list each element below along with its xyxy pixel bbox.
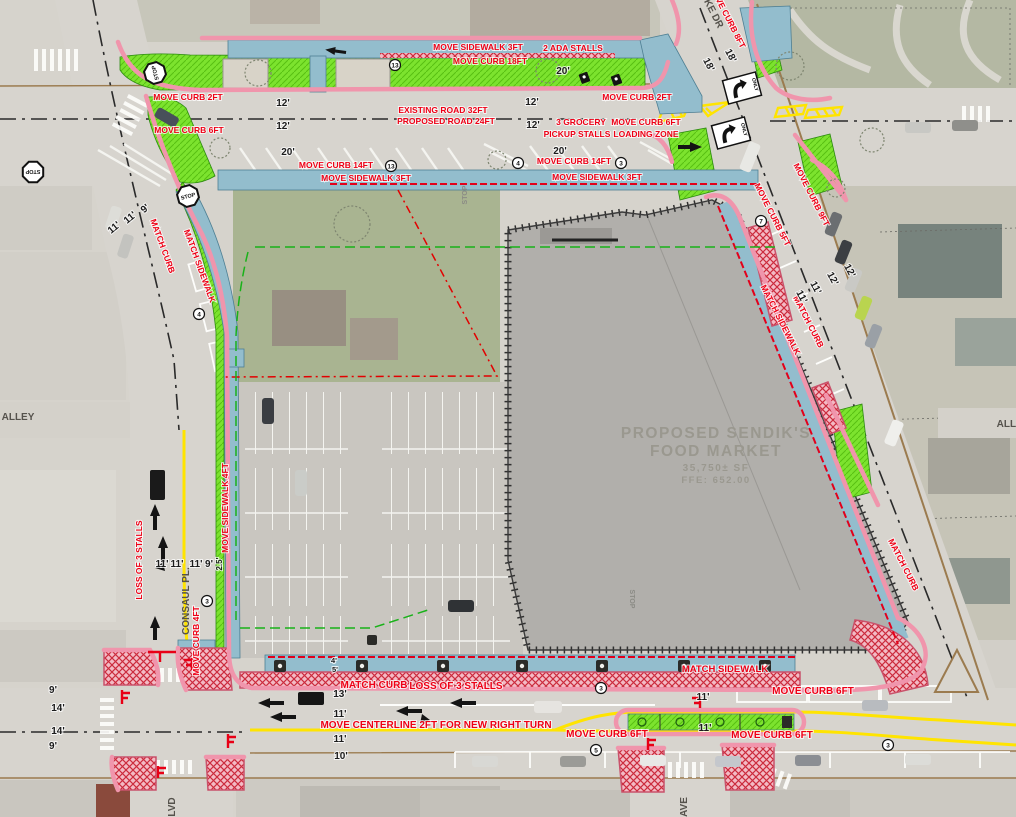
annotation-label: MOVE CURB 14FT: [299, 160, 374, 170]
dimension-label: 4': [331, 656, 337, 665]
site-plan-canvas: 131343743353STOPSTOPSTOPONLYONLY MOVE SI…: [0, 0, 1016, 817]
annotation-label: 3 GROCERY: [556, 117, 606, 127]
dimension-label: 11': [334, 734, 347, 745]
keynote-number: 4: [197, 311, 201, 318]
keynote-marker: 4: [513, 158, 524, 169]
keynote-number: 3: [205, 598, 209, 605]
street-name-label: ALLEY: [997, 419, 1016, 430]
keynote-number: 3: [619, 160, 623, 167]
keynote-number: 4: [516, 160, 520, 167]
keynote-number: 3: [886, 742, 890, 749]
annotation-label: MATCH CURB: [340, 680, 407, 691]
building-label: FFE: 652.00: [681, 475, 750, 486]
keynote-number: 13: [387, 163, 395, 170]
dimension-label: 11': [697, 692, 710, 703]
site-plan-drawing: 131343743353STOPSTOPSTOPONLYONLY MOVE SI…: [0, 0, 1016, 817]
annotation-label: MOVE CURB 6FT: [772, 686, 854, 697]
keynote-number: 7: [759, 218, 763, 225]
annotation-label: EXISTING ROAD 32FT: [398, 105, 488, 115]
annotation-label: PROPOSED ROAD 24FT: [397, 116, 496, 126]
annotation-label: MOVE SIDEWALK 3FT: [552, 172, 643, 182]
paver-patch: [336, 59, 390, 88]
building-label: FOOD MARKET: [650, 443, 782, 460]
dimension-label: 12': [276, 121, 290, 132]
annotation-label: MOVE CENTERLINE 2FT FOR NEW RIGHT TURN: [320, 720, 551, 731]
annotation-label: MOVE SIDEWALK 4FT: [220, 462, 230, 553]
stop-sign-text: STOP: [25, 168, 40, 174]
pavement-stop-marking: STOP: [628, 590, 635, 609]
annotation-label: MOVE CURB 6FT: [566, 729, 648, 740]
annotation-label: MOVE CURB 4FT: [191, 605, 201, 675]
keynote-number: 13: [391, 62, 399, 69]
annotation-label: 2 ADA STALLS: [543, 43, 603, 53]
keynote-marker: 7: [756, 216, 767, 227]
keynote-marker: 13: [386, 161, 397, 172]
dimension-label: 11': [699, 723, 712, 734]
street-name-label: LVD: [167, 797, 178, 816]
dimension-label: 12': [526, 120, 540, 131]
keynote-marker: 5: [591, 745, 602, 756]
dimension-label: 11': [334, 709, 347, 720]
dimension-label: 9': [49, 685, 57, 696]
dimension-label: 20': [556, 66, 570, 77]
keynote-marker: 13: [390, 60, 401, 71]
keynote-marker: 3: [596, 683, 607, 694]
dimension-label: 20': [281, 147, 295, 158]
dimension-label: 14': [51, 703, 65, 714]
dimension-label: 14': [51, 726, 65, 737]
annotation-label: MOVE CURB 6FT: [731, 730, 813, 741]
building-label: 35,750± SF: [683, 463, 750, 474]
dimension-label: 9': [205, 559, 213, 570]
keynote-number: 3: [599, 685, 603, 692]
pavement-stop-marking: STOP: [462, 185, 469, 204]
dimension-label: 13': [333, 689, 347, 700]
keynote-marker: 3: [883, 740, 894, 751]
annotation-label: LOSS OF 3 STALLS: [134, 520, 144, 600]
annotation-label: MOVE SIDEWALK 3FT: [433, 42, 524, 52]
street-name-label: CONSAUL PL.: [181, 567, 192, 635]
annotation-label: PICKUP STALLS: [544, 129, 611, 139]
dimension-label: 12': [525, 97, 539, 108]
keynote-marker: 3: [202, 596, 213, 607]
keynote-number: 5: [594, 747, 598, 754]
annotation-label: MOVE CURB 18FT: [453, 56, 528, 66]
annotation-label: LOADING ZONE: [613, 129, 678, 139]
annotation-label: MOVE CURB 2FT: [153, 92, 223, 102]
dimension-label: 11': [156, 559, 169, 570]
building-label: PROPOSED SENDIK'S: [621, 425, 811, 442]
dimension-label: 12': [276, 98, 290, 109]
annotation-label: MOVE SIDEWALK 3FT: [321, 173, 412, 183]
dimension-label: 10': [334, 751, 348, 762]
annotation-label: MOVE CURB 6FT: [611, 117, 681, 127]
annotation-label: MOVE CURB 14FT: [537, 156, 612, 166]
block-west-2: [0, 470, 116, 622]
street-name-label: AVE: [679, 797, 690, 817]
keynote-marker: 3: [616, 158, 627, 169]
annotation-label: MATCH SIDEWALK: [682, 664, 769, 675]
annotation-label: MOVE CURB 2FT: [602, 92, 672, 102]
keynote-marker: 4: [194, 309, 205, 320]
stop-sign-icon: STOP: [23, 162, 43, 182]
dimension-label: 2.5': [215, 557, 224, 570]
annotation-label: MOVE CURB 6FT: [154, 125, 224, 135]
annotation-label: LOSS OF 3 STALLS: [409, 681, 502, 692]
dimension-label: 9': [49, 741, 57, 752]
street-name-label: ALLEY: [2, 412, 35, 423]
dimension-label: 20': [553, 146, 567, 157]
dimension-label: 5': [332, 665, 338, 674]
